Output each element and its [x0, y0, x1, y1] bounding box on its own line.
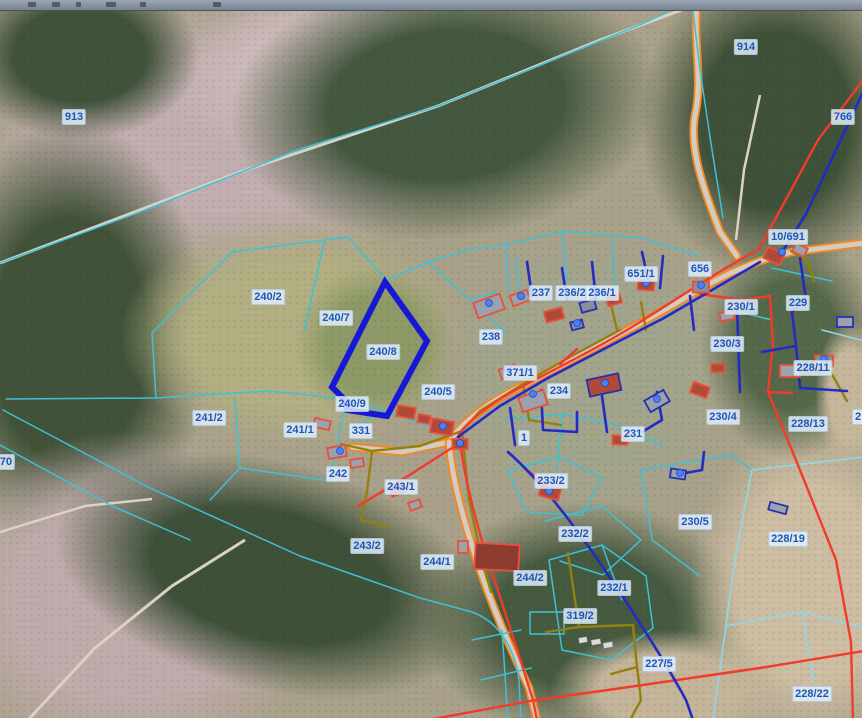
parcel-label-371-1[interactable]: 371/1: [503, 365, 537, 381]
parcel-label-236-2[interactable]: 236/2: [555, 285, 589, 301]
parcel-label-319-2[interactable]: 319/2: [563, 608, 597, 624]
parcel-label-230-1[interactable]: 230/1: [724, 299, 758, 315]
parcel-label-656[interactable]: 656: [688, 261, 712, 277]
parcel-label-766[interactable]: 766: [831, 109, 855, 125]
map-viewer-window: 913 914 766 10/691 656 651/1 237 236/2 2…: [0, 0, 862, 718]
parcel-label-240-8[interactable]: 240/8: [366, 344, 400, 360]
parcel-label-241-2[interactable]: 241/2: [192, 410, 226, 426]
parcel-label-233-2[interactable]: 233/2: [534, 473, 568, 489]
parcel-label-230-4[interactable]: 230/4: [706, 409, 740, 425]
parcel-label-1[interactable]: 1: [518, 430, 530, 446]
parcel-label-243-1[interactable]: 243/1: [384, 479, 418, 495]
parcel-label-240-5[interactable]: 240/5: [421, 384, 455, 400]
parcel-label-228-11[interactable]: 228/11: [793, 360, 832, 376]
parcel-label-230-3[interactable]: 230/3: [710, 336, 744, 352]
parcel-label-240-9[interactable]: 240/9: [335, 396, 369, 412]
parcel-label-234[interactable]: 234: [547, 383, 571, 399]
parcel-label-10-691[interactable]: 10/691: [768, 229, 808, 245]
parcel-label-651-1[interactable]: 651/1: [624, 266, 658, 282]
parcel-label-242[interactable]: 242: [326, 466, 350, 482]
parcel-label-232-1[interactable]: 232/1: [597, 580, 631, 596]
parcel-label-244-1[interactable]: 244/1: [420, 554, 454, 570]
window-chrome-mark: [76, 2, 81, 7]
parcel-label-70[interactable]: 70: [0, 454, 15, 470]
window-chrome-mark: [106, 2, 116, 7]
parcel-label-244-2[interactable]: 244/2: [513, 570, 547, 586]
parcel-label-914[interactable]: 914: [734, 39, 758, 55]
parcel-label-228-13[interactable]: 228/13: [788, 416, 828, 432]
parcel-label-237[interactable]: 237: [529, 285, 553, 301]
window-top-bar: [0, 0, 862, 11]
parcel-label-227-5[interactable]: 227/5: [642, 656, 676, 672]
parcel-label-236-1[interactable]: 236/1: [585, 285, 619, 301]
parcel-label-228-19[interactable]: 228/19: [768, 531, 808, 547]
parcel-label-240-7[interactable]: 240/7: [319, 310, 353, 326]
parcel-label-229[interactable]: 229: [786, 295, 810, 311]
parcel-label-240-2[interactable]: 240/2: [251, 289, 285, 305]
window-chrome-mark: [213, 2, 221, 7]
buildings: [313, 243, 853, 648]
parcel-label-230-5[interactable]: 230/5: [678, 514, 712, 530]
parcel-label-228-22[interactable]: 228/22: [792, 686, 832, 702]
window-chrome-mark: [28, 2, 36, 7]
parcel-label-2-edge[interactable]: 2: [852, 409, 862, 425]
map-canvas[interactable]: [0, 0, 862, 718]
parcel-label-913[interactable]: 913: [62, 109, 86, 125]
parcel-label-231[interactable]: 231: [621, 426, 645, 442]
window-chrome-mark: [52, 2, 60, 7]
parcel-label-238[interactable]: 238: [479, 329, 503, 345]
parcel-label-232-2[interactable]: 232/2: [558, 526, 592, 542]
parcel-label-241-1[interactable]: 241/1: [283, 422, 317, 438]
parcel-label-243-2[interactable]: 243/2: [350, 538, 384, 554]
parcel-label-331[interactable]: 331: [349, 423, 373, 439]
track-lines: [0, 5, 760, 718]
window-chrome-mark: [140, 2, 146, 7]
